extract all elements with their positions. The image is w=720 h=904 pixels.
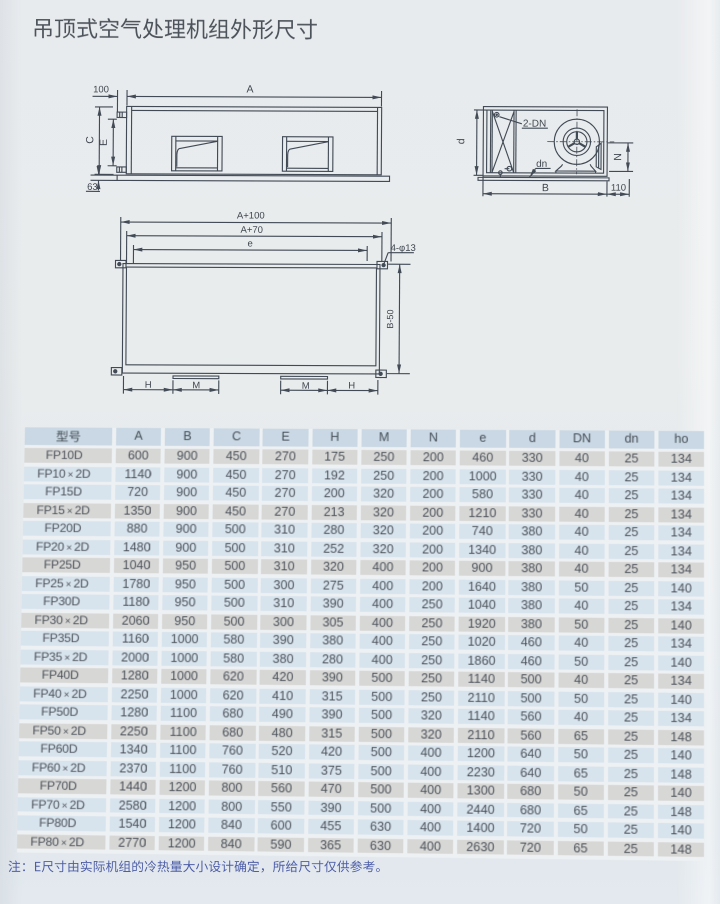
svg-text:A+100: A+100 (237, 210, 265, 221)
svg-text:C: C (84, 136, 96, 144)
svg-text:B-50: B-50 (385, 310, 395, 329)
svg-text:B: B (542, 182, 549, 194)
svg-text:A+70: A+70 (240, 225, 263, 236)
svg-text:M: M (302, 381, 310, 392)
svg-text:E: E (98, 139, 110, 146)
svg-text:110: 110 (611, 183, 626, 194)
svg-text:H: H (348, 380, 355, 391)
svg-text:H: H (145, 380, 152, 391)
svg-text:M: M (192, 380, 200, 391)
svg-text:d: d (455, 138, 467, 144)
svg-text:A: A (247, 83, 254, 95)
svg-text:e: e (247, 238, 252, 249)
svg-text:2-DN: 2-DN (523, 119, 546, 130)
svg-text:N: N (612, 153, 624, 161)
svg-text:100: 100 (93, 84, 109, 95)
